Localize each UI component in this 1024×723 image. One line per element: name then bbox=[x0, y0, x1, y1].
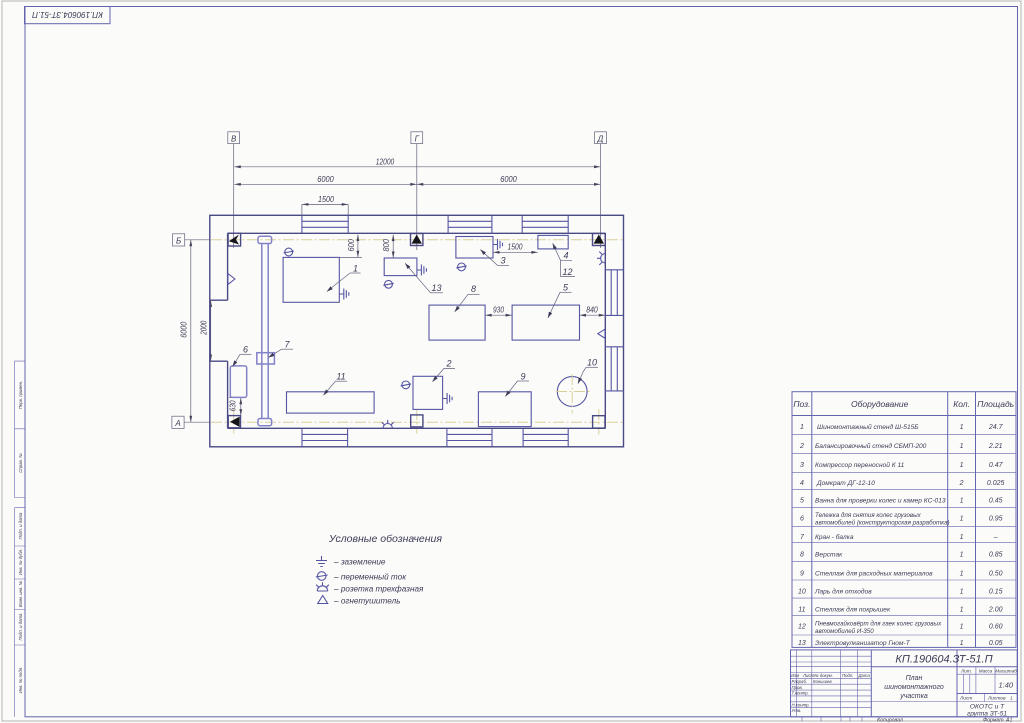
svg-text:10: 10 bbox=[587, 358, 597, 368]
svg-text:2.21: 2.21 bbox=[988, 443, 1003, 450]
svg-text:автомобилей И-350: автомобилей И-350 bbox=[815, 628, 874, 635]
svg-text:Лист: Лист bbox=[959, 696, 972, 702]
svg-text:Подп. и дата: Подп. и дата bbox=[18, 613, 23, 641]
svg-text:Верстак: Верстак bbox=[815, 552, 843, 559]
svg-text:9: 9 bbox=[520, 371, 525, 381]
svg-text:– заземление: – заземление bbox=[333, 558, 386, 567]
svg-text:1: 1 bbox=[960, 640, 964, 647]
svg-text:А: А bbox=[174, 419, 180, 428]
svg-text:Шиномонтажный стенд Ш-515Б: Шиномонтажный стенд Ш-515Б bbox=[817, 423, 919, 431]
svg-text:6000: 6000 bbox=[317, 174, 334, 184]
svg-text:1:40: 1:40 bbox=[998, 681, 1013, 690]
svg-text:Лит.: Лит. bbox=[960, 668, 972, 673]
svg-text:0.05: 0.05 bbox=[989, 640, 1003, 647]
svg-text:№ докум.: № докум. bbox=[814, 673, 833, 678]
svg-text:0.45: 0.45 bbox=[989, 498, 1003, 505]
svg-text:11: 11 bbox=[798, 607, 805, 614]
svg-text:0.60: 0.60 bbox=[989, 624, 1003, 631]
svg-text:1: 1 bbox=[1010, 696, 1013, 702]
svg-text:1: 1 bbox=[960, 607, 964, 614]
svg-text:12: 12 bbox=[798, 624, 806, 631]
svg-text:Масштаб: Масштаб bbox=[995, 668, 1017, 673]
svg-text:1: 1 bbox=[353, 263, 358, 273]
svg-text:0.47: 0.47 bbox=[989, 462, 1004, 469]
svg-text:800: 800 bbox=[381, 239, 391, 252]
svg-text:1: 1 bbox=[960, 624, 964, 631]
svg-text:11: 11 bbox=[336, 372, 345, 382]
svg-text:1: 1 bbox=[960, 424, 964, 431]
svg-text:Стеллаж для расходных материал: Стеллаж для расходных материалов bbox=[815, 570, 933, 578]
svg-text:Формат: Формат bbox=[983, 717, 1004, 723]
svg-text:12: 12 bbox=[562, 267, 572, 277]
svg-text:8: 8 bbox=[471, 284, 476, 294]
svg-text:2: 2 bbox=[799, 443, 804, 450]
svg-text:1: 1 bbox=[960, 534, 964, 541]
svg-text:Копировал: Копировал bbox=[877, 717, 903, 723]
svg-text:Дата: Дата bbox=[858, 673, 871, 678]
svg-text:10: 10 bbox=[798, 589, 806, 596]
svg-text:Лист: Лист bbox=[802, 673, 814, 678]
svg-text:ОКОТС и Т: ОКОТС и Т bbox=[970, 704, 1005, 711]
svg-text:А1: А1 bbox=[1005, 717, 1012, 723]
svg-text:2: 2 bbox=[445, 359, 451, 369]
svg-text:Г: Г bbox=[415, 134, 420, 143]
svg-text:600: 600 bbox=[346, 239, 356, 252]
svg-text:Изм: Изм bbox=[791, 673, 799, 678]
svg-text:Балансировочный стенд СБМП-200: Балансировочный стенд СБМП-200 bbox=[815, 442, 927, 450]
svg-text:– переменный ток: – переменный ток bbox=[333, 573, 407, 582]
svg-text:Инв. № дубл.: Инв. № дубл. bbox=[18, 549, 23, 575]
svg-text:840: 840 bbox=[586, 304, 598, 314]
svg-text:В: В bbox=[231, 134, 237, 143]
svg-text:Инв. № подл.: Инв. № подл. bbox=[18, 667, 23, 694]
svg-text:Ларь для отходов: Ларь для отходов bbox=[814, 588, 872, 596]
svg-text:1: 1 bbox=[960, 516, 964, 523]
svg-text:1: 1 bbox=[960, 462, 964, 469]
svg-text:Ванна для проверки колес и кам: Ванна для проверки колес и камер КС-013 bbox=[815, 497, 946, 505]
svg-text:1: 1 bbox=[960, 571, 964, 578]
svg-text:План: План bbox=[906, 675, 923, 682]
svg-text:Разраб.: Разраб. bbox=[792, 679, 808, 684]
svg-text:0.50: 0.50 bbox=[989, 571, 1003, 578]
svg-text:Н.контр.: Н.контр. bbox=[792, 702, 810, 707]
svg-text:13: 13 bbox=[798, 640, 806, 647]
svg-text:13: 13 bbox=[431, 283, 441, 293]
svg-text:4: 4 bbox=[800, 480, 804, 487]
svg-text:КП.190604.ЗТ-51.П: КП.190604.ЗТ-51.П bbox=[32, 10, 103, 19]
svg-text:Справ. №: Справ. № bbox=[18, 453, 23, 473]
svg-text:Тележка для снятия колес грузо: Тележка для снятия колес грузовых bbox=[815, 512, 922, 519]
svg-text:Перв. примен.: Перв. примен. bbox=[18, 381, 23, 410]
svg-text:930: 930 bbox=[493, 304, 504, 314]
svg-text:Пневмогайковёрт для гаек колес: Пневмогайковёрт для гаек колес грузовых bbox=[815, 621, 942, 628]
svg-text:1500: 1500 bbox=[508, 242, 523, 252]
svg-text:Домкрат ДГ-12-10: Домкрат ДГ-12-10 bbox=[816, 480, 875, 487]
svg-text:Д: Д bbox=[597, 134, 604, 143]
svg-text:– розетка трехфазная: – розетка трехфазная bbox=[333, 585, 424, 594]
svg-text:0.15: 0.15 bbox=[989, 589, 1003, 596]
svg-text:Стеллаж для покрышек: Стеллаж для покрышек bbox=[815, 606, 891, 614]
svg-text:Пров.: Пров. bbox=[792, 685, 803, 690]
svg-text:КП.190604.ЗТ-51.П: КП.190604.ЗТ-51.П bbox=[895, 654, 992, 666]
svg-text:Взам. инв. №: Взам. инв. № bbox=[18, 580, 23, 607]
svg-text:1: 1 bbox=[960, 552, 964, 559]
svg-text:12000: 12000 bbox=[376, 156, 395, 166]
svg-text:шиномонтажного: шиномонтажного bbox=[884, 684, 944, 691]
svg-text:Б: Б bbox=[176, 237, 181, 246]
svg-text:9: 9 bbox=[800, 571, 804, 578]
svg-text:2.00: 2.00 bbox=[988, 607, 1003, 614]
svg-text:Компрессор переносной К 11: Компрессор переносной К 11 bbox=[815, 461, 905, 469]
svg-text:Кол.: Кол. bbox=[953, 399, 970, 409]
svg-text:Условные обозначения: Условные обозначения bbox=[328, 533, 442, 545]
svg-text:1500: 1500 bbox=[318, 194, 334, 204]
svg-text:Подп.: Подп. bbox=[842, 673, 853, 678]
svg-text:Поз.: Поз. bbox=[793, 399, 810, 409]
svg-text:3: 3 bbox=[800, 462, 804, 469]
svg-text:Оборудование: Оборудование bbox=[851, 399, 909, 409]
svg-text:– огнетушитель: – огнетушитель bbox=[333, 597, 401, 606]
svg-text:Утв.: Утв. bbox=[792, 708, 802, 713]
svg-text:Конышев: Конышев bbox=[813, 679, 832, 684]
svg-text:1: 1 bbox=[960, 589, 964, 596]
svg-text:1: 1 bbox=[960, 443, 964, 450]
svg-text:Электровулканизатор Гном-Т: Электровулканизатор Гном-Т bbox=[815, 640, 911, 647]
svg-text:Подп. и дата: Подп. и дата bbox=[18, 512, 23, 540]
svg-text:6: 6 bbox=[800, 516, 804, 523]
svg-text:24.7: 24.7 bbox=[988, 424, 1004, 431]
svg-text:Кран - балка: Кран - балка bbox=[815, 533, 854, 541]
svg-text:5: 5 bbox=[800, 498, 804, 505]
svg-text:6000: 6000 bbox=[500, 174, 517, 184]
svg-text:Площадь: Площадь bbox=[977, 399, 1014, 409]
svg-text:6000: 6000 bbox=[179, 321, 188, 337]
svg-text:1: 1 bbox=[960, 498, 964, 505]
svg-text:0.95: 0.95 bbox=[989, 516, 1003, 523]
svg-text:4: 4 bbox=[563, 251, 568, 261]
svg-text:Масса: Масса bbox=[979, 668, 993, 673]
svg-text:3: 3 bbox=[500, 256, 505, 266]
svg-text:2: 2 bbox=[959, 480, 964, 487]
svg-text:1: 1 bbox=[800, 424, 804, 431]
svg-text:2000: 2000 bbox=[199, 320, 208, 335]
svg-text:–: – bbox=[993, 534, 998, 541]
svg-text:Т.контр.: Т.контр. bbox=[792, 691, 809, 696]
svg-text:630: 630 bbox=[228, 400, 237, 411]
svg-text:участка: участка bbox=[899, 693, 928, 700]
svg-text:0.85: 0.85 bbox=[989, 552, 1003, 559]
svg-text:6: 6 bbox=[243, 345, 248, 355]
svg-text:автомобилей (конструкторская р: автомобилей (конструкторская разработка) bbox=[815, 520, 950, 527]
svg-text:Листов: Листов bbox=[987, 696, 1006, 702]
svg-text:8: 8 bbox=[800, 552, 804, 559]
svg-text:0.025: 0.025 bbox=[987, 480, 1005, 487]
